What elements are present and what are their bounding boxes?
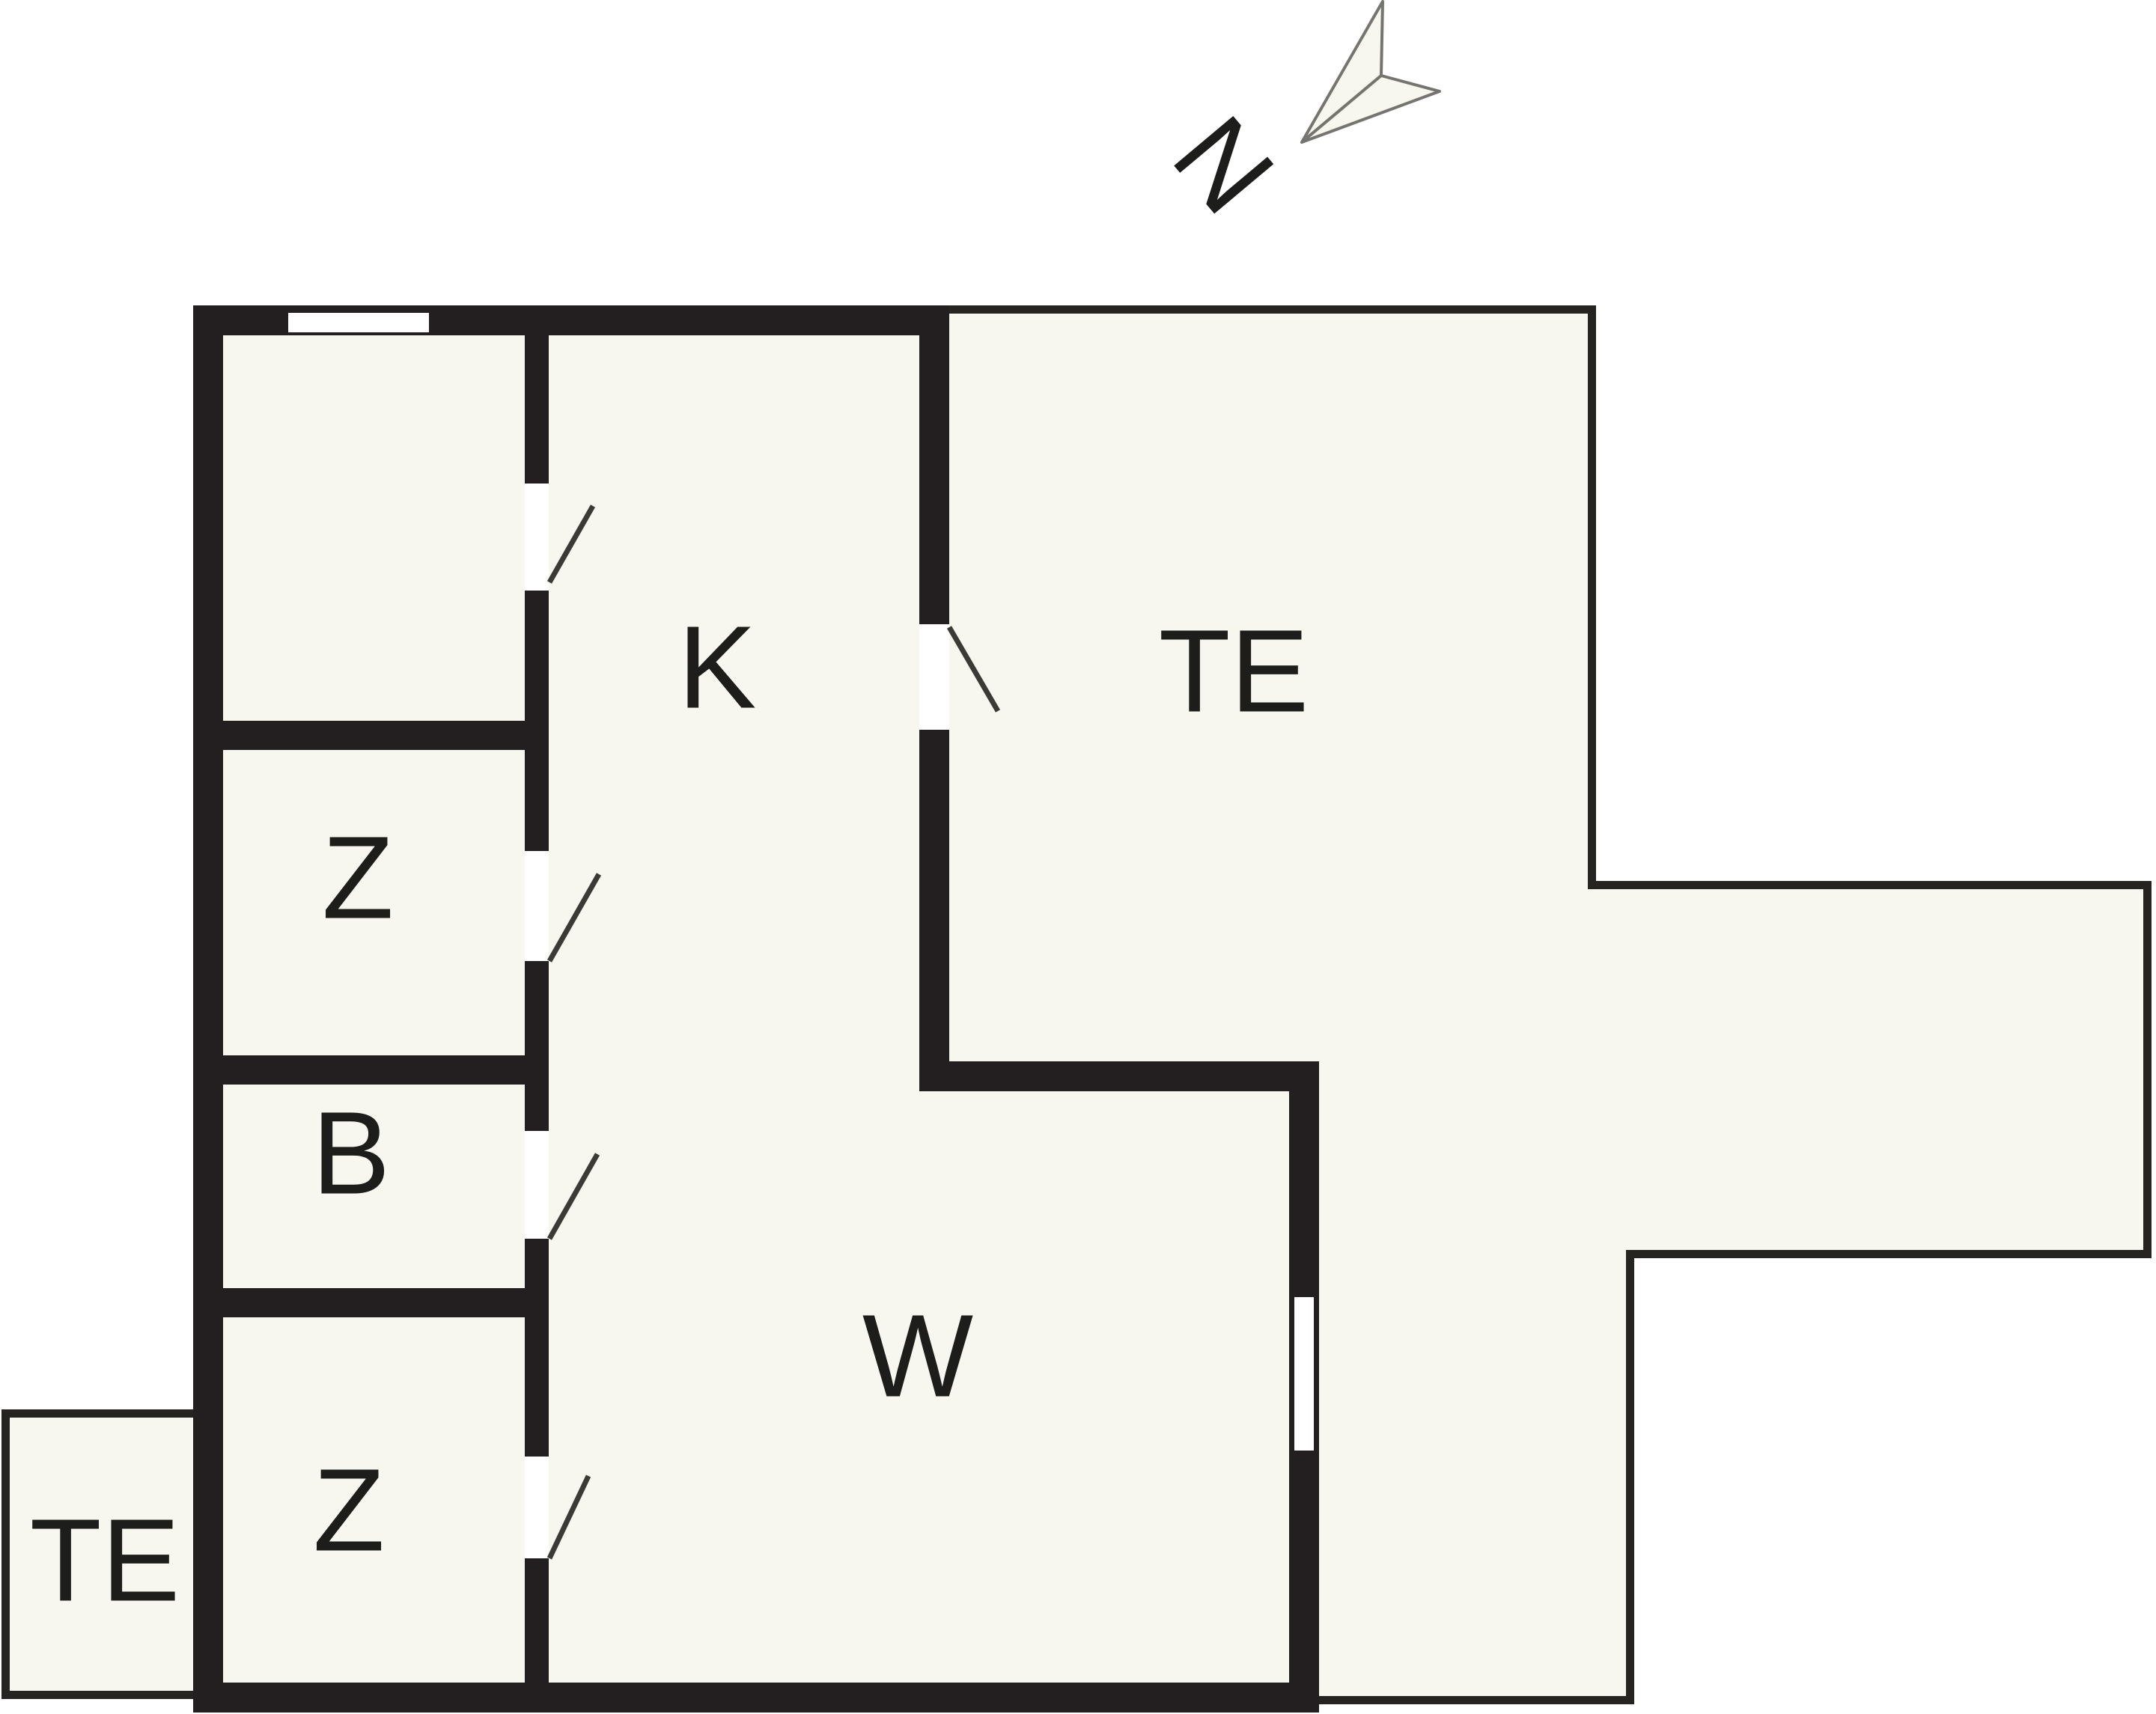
floor-plan-page: KTEZBZWTE N bbox=[0, 0, 2156, 1714]
north-label: N bbox=[1150, 94, 1298, 237]
terrace-arm-bottom-edge bbox=[1626, 1250, 2152, 1258]
terrace-arm-top-edge bbox=[1588, 881, 2152, 889]
wall-bottom bbox=[193, 1683, 1319, 1713]
room-label-z1: Z bbox=[322, 813, 394, 944]
terrace-bl-top-edge bbox=[1, 1409, 193, 1418]
wall-left bbox=[193, 305, 223, 1713]
room-label-te-bottom: TE bbox=[30, 1495, 180, 1626]
floor-plan-svg: KTEZBZWTE N bbox=[0, 0, 2156, 1714]
floor-terrace-top bbox=[934, 309, 1592, 885]
terrace-bl-bottom-edge bbox=[1, 1691, 193, 1699]
wall-partition-3 bbox=[223, 1288, 549, 1317]
window-top-wall bbox=[288, 313, 429, 332]
terrace-right-edge bbox=[1588, 305, 1596, 889]
floor-terrace-middle bbox=[934, 885, 1630, 1076]
wall-mid bbox=[919, 1061, 1319, 1091]
north-indicator: N bbox=[1150, 1, 1440, 236]
floor-terrace-south bbox=[1304, 1076, 1630, 1701]
terrace-bl-left-edge bbox=[1, 1409, 10, 1699]
room-label-b: B bbox=[312, 1088, 391, 1219]
door-opening-room1 bbox=[525, 484, 549, 591]
room-label-k: K bbox=[678, 603, 757, 734]
terrace-south-bottom-edge bbox=[1319, 1696, 1634, 1704]
floor-terrace-arm bbox=[1592, 885, 2148, 1254]
door-opening-b bbox=[525, 1131, 549, 1239]
wall-partition-2 bbox=[223, 1055, 549, 1085]
terrace-below-arm-edge bbox=[1626, 1250, 1634, 1704]
terrace-arm-right-edge bbox=[2143, 881, 2152, 1258]
wall-partition-1 bbox=[223, 721, 549, 750]
terrace-top-edge bbox=[949, 305, 1596, 314]
door-opening-entry bbox=[919, 624, 949, 730]
door-opening-z2 bbox=[525, 1457, 549, 1558]
window-right-wall bbox=[1294, 1297, 1314, 1451]
room-label-w: W bbox=[862, 1291, 973, 1422]
room-label-te-top: TE bbox=[1159, 606, 1309, 737]
door-opening-z1 bbox=[525, 851, 549, 961]
room-label-z2: Z bbox=[313, 1445, 385, 1576]
